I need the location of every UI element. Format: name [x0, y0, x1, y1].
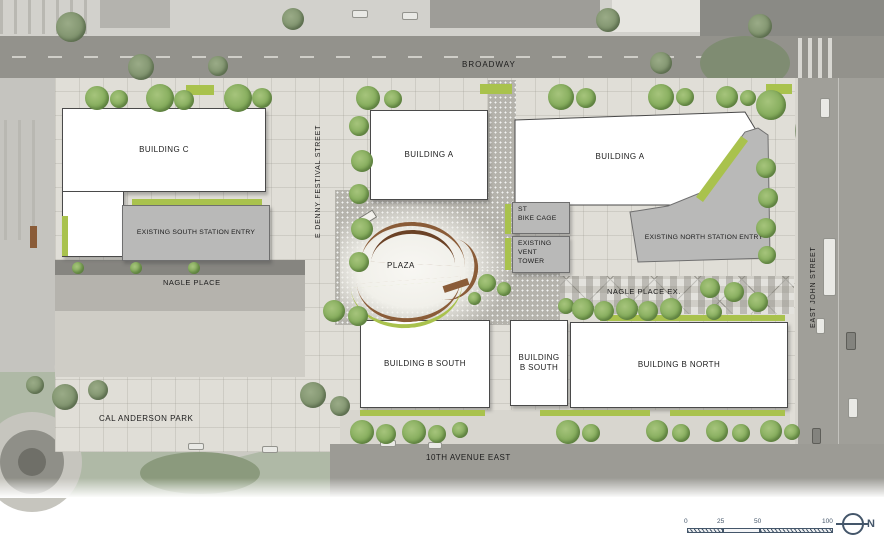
planting-strip	[505, 204, 511, 234]
tree-icon	[349, 252, 369, 272]
tree-icon	[252, 88, 272, 108]
st-bike-cage-label: ST BIKE CAGE	[513, 203, 556, 224]
tree-icon	[72, 262, 84, 274]
tree-icon	[716, 86, 738, 108]
vehicle-icon	[848, 398, 858, 418]
tree-icon	[596, 8, 620, 32]
vehicle-icon	[262, 446, 278, 453]
vent-tower-line3: TOWER	[518, 258, 551, 267]
tree-icon	[384, 90, 402, 108]
st-bike-cage: ST BIKE CAGE	[512, 202, 570, 234]
site-plan: BUILDING C EXISTING SOUTH STATION ENTRY …	[0, 0, 884, 552]
tree-icon	[594, 301, 614, 321]
crosswalk	[798, 38, 838, 78]
building-b-south-label: BUILDING B SOUTH	[384, 359, 466, 369]
photo-building	[612, 0, 704, 32]
tree-icon	[582, 424, 600, 442]
tree-icon	[208, 56, 228, 76]
vent-tower-line2: VENT	[518, 249, 551, 258]
tree-icon	[356, 86, 380, 110]
tree-icon	[128, 54, 154, 80]
vent-tower-label: EXISTING VENT TOWER	[513, 237, 551, 266]
building-a-west-label: BUILDING A	[405, 150, 454, 160]
scale-bar-segment	[760, 528, 833, 533]
south-station-entry: EXISTING SOUTH STATION ENTRY	[122, 205, 270, 261]
tree-icon	[672, 424, 690, 442]
tree-icon	[174, 90, 194, 110]
building-a-west: BUILDING A	[370, 110, 488, 200]
tree-icon	[660, 298, 682, 320]
building-a-east-label: BUILDING A	[596, 152, 645, 161]
tree-icon	[706, 304, 722, 320]
bench	[30, 226, 37, 248]
scale-tick-0: 0	[684, 518, 688, 525]
building-b-south-small: BUILDING B SOUTH	[510, 320, 568, 406]
planting-strip	[505, 238, 511, 270]
existing-vent-tower: EXISTING VENT TOWER	[512, 236, 570, 273]
building-b-south-small-line2: B SOUTH	[519, 363, 560, 373]
building-b-south-small-line1: BUILDING	[519, 353, 560, 363]
tree-icon	[376, 424, 396, 444]
tree-icon	[760, 420, 782, 442]
photo-fade	[0, 478, 884, 498]
scale-bar-segment	[687, 528, 723, 533]
tree-icon	[756, 158, 776, 178]
tree-icon	[26, 376, 44, 394]
vent-tower-line1: EXISTING	[518, 240, 551, 249]
tree-icon	[351, 218, 373, 240]
south-station-entry-label: EXISTING SOUTH STATION ENTRY	[137, 229, 255, 238]
vehicle-icon	[823, 238, 836, 296]
planting-strip	[360, 410, 485, 416]
fountain-center	[18, 448, 46, 476]
north-station-entry-label: EXISTING NORTH STATION ENTRY	[645, 234, 763, 241]
tree-icon	[224, 84, 252, 112]
tree-icon	[748, 292, 768, 312]
st-bike-cage-line2: BIKE CAGE	[518, 215, 556, 224]
tree-icon	[676, 88, 694, 106]
tree-icon	[110, 90, 128, 108]
planting-strip	[62, 216, 68, 256]
tree-icon	[784, 424, 800, 440]
photo-building	[430, 0, 600, 28]
tree-icon	[402, 420, 426, 444]
vehicle-icon	[816, 318, 825, 334]
tree-icon	[648, 84, 674, 110]
st-bike-cage-line1: ST	[518, 206, 556, 215]
building-b-south: BUILDING B SOUTH	[360, 320, 490, 408]
plaza-label: PLAZA	[387, 261, 415, 270]
scale-bar-segment	[723, 528, 760, 533]
tree-icon	[497, 282, 511, 296]
tree-icon	[756, 218, 776, 238]
tree-icon	[468, 292, 481, 305]
lane-line	[838, 78, 839, 497]
tree-icon	[732, 424, 750, 442]
building-b-north: BUILDING B NORTH	[570, 322, 788, 408]
tree-icon	[646, 420, 668, 442]
tree-icon	[756, 90, 786, 120]
tree-icon	[638, 301, 658, 321]
nagle-place-ex-label: NAGLE PLACE EX.	[607, 287, 681, 296]
vehicle-icon	[352, 10, 368, 18]
tree-icon	[452, 422, 468, 438]
tree-icon	[88, 380, 108, 400]
cal-anderson-park-label: CAL ANDERSON PARK	[99, 414, 193, 423]
building-a-east: BUILDING A	[560, 146, 680, 164]
vehicle-icon	[812, 428, 821, 444]
tree-icon	[548, 84, 574, 110]
tree-icon	[572, 298, 594, 320]
tree-icon	[758, 246, 776, 264]
tree-icon	[576, 88, 596, 108]
tree-icon	[428, 425, 446, 443]
scale-tick-100: 100	[822, 518, 833, 525]
tree-icon	[758, 188, 778, 208]
building-c-label: BUILDING C	[139, 145, 189, 155]
scale-tick-50: 50	[754, 518, 761, 525]
tree-icon	[724, 282, 744, 302]
vehicle-icon	[188, 443, 204, 450]
tree-icon	[706, 420, 728, 442]
building-b-south-small-label: BUILDING B SOUTH	[519, 353, 560, 373]
vehicle-icon	[402, 12, 418, 20]
tree-icon	[52, 384, 78, 410]
tree-icon	[146, 84, 174, 112]
building-c: BUILDING C	[62, 108, 266, 192]
tree-icon	[556, 420, 580, 444]
tree-icon	[348, 306, 368, 326]
tree-icon	[188, 262, 200, 274]
tenth-avenue-east-label: 10TH AVENUE EAST	[426, 453, 511, 462]
nagle-place-label: NAGLE PLACE	[163, 278, 221, 287]
tree-icon	[282, 8, 304, 30]
tree-icon	[700, 278, 720, 298]
tree-icon	[350, 420, 374, 444]
nagle-lower-walk	[55, 311, 305, 377]
tree-icon	[616, 298, 638, 320]
vehicle-icon	[846, 332, 856, 350]
tree-icon	[300, 382, 326, 408]
scale-tick-25: 25	[717, 518, 724, 525]
parking-stripes	[4, 120, 44, 240]
tree-icon	[56, 12, 86, 42]
vehicle-icon	[428, 442, 442, 449]
tree-icon	[349, 116, 369, 136]
building-b-north-label: BUILDING B NORTH	[638, 360, 720, 370]
planting-strip	[132, 199, 262, 205]
tree-icon	[330, 396, 350, 416]
north-arrow-line	[836, 523, 868, 525]
planter	[480, 84, 512, 94]
nagle-dark-walk	[55, 260, 305, 275]
photo-building	[100, 0, 170, 28]
tree-icon	[323, 300, 345, 322]
tree-icon	[650, 52, 672, 74]
tree-icon	[85, 86, 109, 110]
tree-icon	[740, 90, 756, 106]
planting-strip	[540, 410, 650, 416]
tree-icon	[349, 184, 369, 204]
planting-strip	[670, 410, 785, 416]
broadway-label: BROADWAY	[462, 60, 516, 69]
tree-icon	[478, 274, 496, 292]
vehicle-icon	[820, 98, 830, 118]
tree-icon	[351, 150, 373, 172]
building-c-wing	[62, 191, 124, 257]
tree-icon	[130, 262, 142, 274]
tree-icon	[748, 14, 772, 38]
north-label: N	[867, 518, 875, 530]
e-denny-festival-street-label: E DENNY FESTIVAL STREET	[315, 112, 322, 238]
east-john-street-label: EAST JOHN STREET	[810, 252, 817, 328]
